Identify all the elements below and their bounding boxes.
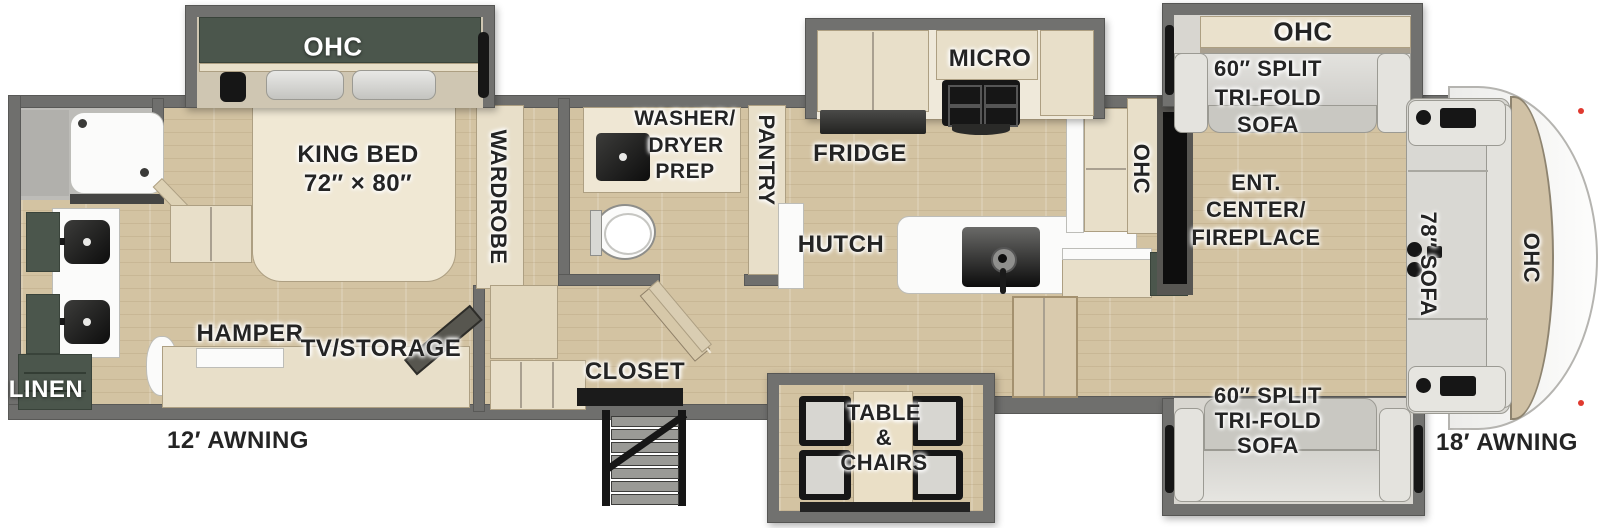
stove-grate-1 [948,85,982,106]
label-table-3: CHAIRS [840,450,927,476]
label-hamper: HAMPER [196,320,303,348]
closet-bench-seam [520,362,522,408]
ent-center-tv [1163,112,1187,284]
shower-glass-door [70,194,164,204]
laundry-sink-drain [619,153,627,161]
kitchen-lower-cabinet [1084,108,1128,232]
fridge-front [820,110,926,134]
label-kitchen-ohc: OHC [1128,144,1154,194]
bedroom-slide-window-right [478,32,489,98]
label-sofa-bottom-3: SOFA [1237,433,1299,459]
closet-bench-seam2 [552,362,554,408]
label-sofa-bottom-1: 60″ SPLIT [1214,383,1322,409]
entry-steps-rail-left [602,410,610,506]
front-sofa-tray-top [1440,108,1476,128]
label-sofa-top-ohc: OHC [1273,17,1332,48]
label-washer-3: PREP [655,160,714,184]
vanity-mirror-2 [26,294,60,354]
label-front-sofa: 78″ SOFA [1415,211,1441,316]
label-ent-2: CENTER/ [1206,197,1306,223]
bed-pillow-left [266,70,344,100]
shower-drain-icon [140,168,149,177]
label-washer-1: WASHER/ [634,107,736,131]
label-king-bed-size: 72″ × 80″ [304,170,412,198]
label-sofa-top-3: SOFA [1237,112,1299,138]
toilet-tank [590,210,602,256]
label-linen: LINEN [9,376,84,404]
console-counter [196,348,284,368]
label-wardrobe: WARDROBE [485,130,511,265]
vanity-mirror-1 [26,212,60,272]
wall-midbath-left [558,98,570,286]
vanity-sink-2-drain [83,318,91,326]
entry-step-5 [611,468,679,479]
floorplan-canvas: OHC KING BED 72″ × 80″ WARDROBE WASHER/ … [0,0,1600,528]
sofa-top-armrest-left [1174,53,1208,133]
sofa-bottom-slide-window-right [1414,425,1423,493]
shower-head-icon [78,119,87,128]
label-front-ohc: OHC [1518,233,1544,283]
half-wall [1012,296,1078,398]
label-sofa-top-2: TRI-FOLD [1215,85,1322,111]
dinette-slide-base [800,502,970,512]
entry-step-6 [611,481,679,492]
chair-top-right-seat [918,402,956,440]
label-ent-1: ENT. [1231,170,1281,196]
wall-hall-closet [473,285,485,412]
label-fridge: FRIDGE [813,140,907,168]
wall-midbath-bottom-a [558,274,660,286]
front-sofa-cupholder-top-icon [1416,110,1431,125]
toilet-seat [604,213,652,255]
front-sofa-seam-1 [1408,170,1488,172]
sofa-bottom-armrest-left [1174,408,1204,502]
label-bedroom-ohc: OHC [303,32,362,63]
entry-step-7 [611,494,679,505]
label-awning-right: 18′ AWNING [1436,429,1578,457]
label-hutch: HUTCH [798,231,885,259]
label-king-bed: KING BED [297,141,418,169]
chair-bottom-left-seat [806,456,844,494]
label-table-1: TABLE [847,400,921,426]
bedroom-slide-window [220,72,246,102]
label-tv-storage: TV/STORAGE [301,335,462,363]
label-ent-3: FIREPLACE [1191,225,1320,251]
kitchen-counter-strip [1066,105,1084,233]
bed-pillow-right [352,70,436,100]
stove-front-vent [952,124,1010,135]
clearance-light-bottom-icon [1578,400,1584,406]
island-faucet-hose [1000,268,1006,294]
label-awning-left: 12′ AWNING [167,427,309,455]
label-closet: CLOSET [585,358,685,386]
label-table-2: & [876,425,892,451]
chair-top-left-seat [806,402,844,440]
sofa-bottom-armrest-right [1379,408,1411,502]
front-sofa-back [1486,104,1512,408]
front-sofa-cupholder-bottom-icon [1416,378,1431,393]
entry-landing [577,388,683,406]
kitchen-cab-seam [1086,168,1126,170]
fridge-cab-seam [872,32,874,110]
clearance-light-top-icon [1578,108,1584,114]
closet-bench [490,360,586,410]
sofa-bottom-slide-window-left [1165,425,1174,493]
front-sofa-seam-2 [1408,318,1488,320]
sofa-top-slide-window [1165,25,1174,95]
label-washer-2: DRYER [648,134,723,158]
label-sofa-top-1: 60″ SPLIT [1214,56,1322,82]
stove-grate-2 [984,85,1018,106]
kitchen-slide-cabinet-right [1040,30,1094,116]
entry-steps-rail-right [678,410,686,506]
island-faucet-center [998,254,1007,263]
half-wall-seam [1043,298,1045,396]
closet-tall-cabinet [490,285,558,359]
front-sofa-tray-bottom [1440,376,1476,396]
label-micro: MICRO [949,45,1032,73]
linen-drawer-line [24,372,86,374]
label-pantry: PANTRY [753,115,779,206]
dresser-seam [210,207,212,261]
rear-bath-counter [21,110,69,196]
label-sofa-bottom-2: TRI-FOLD [1215,408,1322,434]
sideboard-top [1062,248,1152,260]
vanity-sink-1-drain [83,238,91,246]
